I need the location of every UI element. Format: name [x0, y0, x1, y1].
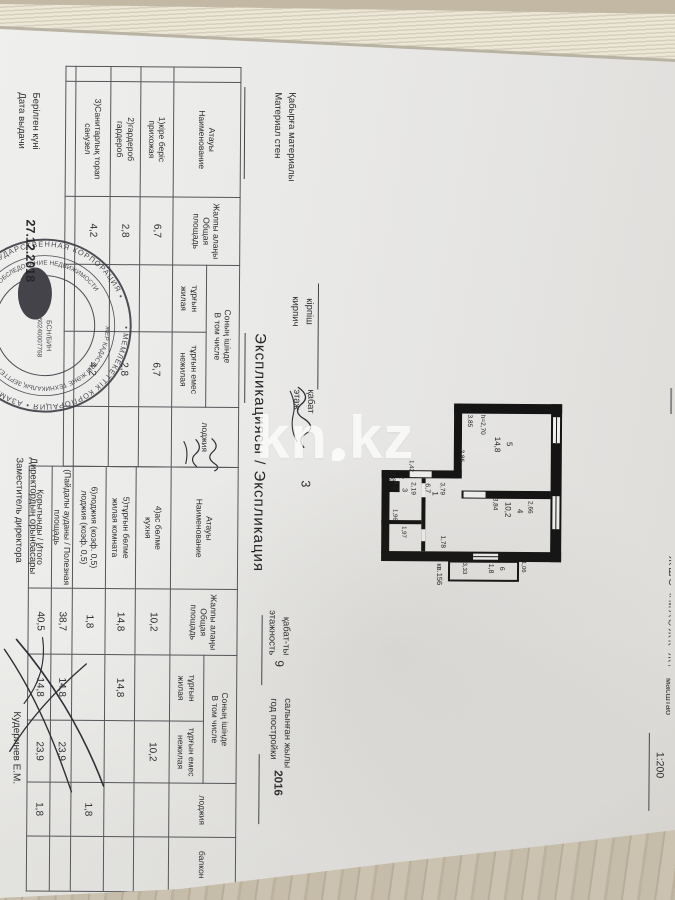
- header-living: тұрғынжилая: [169, 655, 203, 721]
- wall-material-underline: [244, 87, 246, 179]
- svg-text:6,7: 6,7: [424, 483, 431, 493]
- plan-loggia: [449, 561, 518, 580]
- kn-kz-watermark: kn kz: [256, 408, 414, 468]
- floors-underline: [261, 615, 262, 685]
- apartment-number: кв.156: [435, 563, 444, 585]
- room-name: 6)лоджия (коэф. 0,5)лоджия (коэф. 0,5): [72, 466, 106, 588]
- wall-value-rule: [317, 284, 319, 390]
- svg-text:2,66: 2,66: [526, 501, 533, 514]
- plan-wall-right: [381, 551, 561, 562]
- header-including: Соның ішіндеВ том числе: [203, 655, 237, 783]
- cell: [141, 67, 174, 82]
- svg-text:4: 4: [515, 509, 524, 514]
- svg-text:1,96: 1,96: [391, 509, 397, 521]
- issue-date-value: 27.12.2018: [23, 219, 37, 282]
- header-nonliving: тұрғын емеснежилая: [172, 332, 207, 407]
- scale-label-wrap: масштаб: [664, 678, 670, 738]
- cell: [103, 837, 133, 892]
- header-name: АтауыНаименование: [170, 467, 238, 589]
- svg-text:3: 3: [401, 488, 408, 492]
- svg-text:1,97: 1,97: [400, 526, 406, 538]
- header-total-area: Жалпы алаңыОбщая площадь: [173, 197, 240, 265]
- floor-value: 3: [299, 480, 313, 487]
- room-name: 2)гардеробгардероб: [110, 82, 141, 197]
- header-name: АтауыНаименование: [173, 82, 241, 197]
- cell: 10,2: [135, 589, 170, 655]
- plan-wall-bottom: [381, 470, 390, 553]
- svg-text:1,78: 1,78: [439, 535, 446, 548]
- svg-text:1: 1: [431, 491, 440, 496]
- room-name: 4)ас бөлмекухня: [135, 467, 171, 589]
- year-built-underline: [258, 754, 259, 824]
- stamp-bin-label: БСН/БИН: [45, 320, 52, 351]
- cell: [111, 67, 141, 82]
- svg-text:3,85: 3,85: [466, 415, 473, 428]
- cell: [76, 66, 111, 81]
- watermark-dot-icon: [332, 448, 345, 461]
- cut-off-marks: [670, 388, 672, 414]
- header-loggia: лоджия: [169, 783, 236, 837]
- wall-material-label: Қабырға материалы Материал стен: [270, 92, 298, 181]
- cell: [138, 407, 171, 467]
- svg-text:2,19: 2,19: [410, 482, 417, 495]
- stamp-bin-value: 160240007768: [35, 314, 42, 358]
- cell: [26, 836, 49, 891]
- svg-text:14,8: 14,8: [493, 437, 502, 453]
- header-total-area: Жалпы алаңыОбщая площадь: [170, 589, 237, 655]
- svg-text:2: 2: [398, 475, 405, 479]
- deputy-director-label: Директордың орынбасары Заместитель дирек…: [11, 457, 39, 574]
- scale-value: 1:200: [654, 752, 666, 778]
- signer-name: Кудеринев Е.М.: [11, 711, 23, 784]
- room-name: 5)тұрғын бөлмежилая комната: [105, 467, 136, 589]
- cell: [174, 67, 241, 82]
- table-header-row: АтауыНаименование Жалпы алаңыОбщая площа…: [205, 67, 241, 467]
- plan-wall-step: [454, 403, 463, 478]
- svg-text:10,2: 10,2: [503, 502, 512, 518]
- cell: [133, 837, 168, 892]
- round-stamp: • МЕМЛЕКЕТТІК КОРПОРАЦИЯ • АЗАМАТТАРҒА А…: [0, 231, 139, 422]
- scale-underline: [648, 733, 650, 811]
- year-built-value: 2016: [271, 770, 283, 796]
- wall-material-value: кірпіш кирпич: [288, 296, 316, 326]
- table-row: 4)ас бөлмекухня 10,2 10,2: [133, 467, 171, 892]
- cell: [139, 265, 172, 332]
- svg-text:3,33: 3,33: [461, 563, 467, 575]
- svg-text:3,85: 3,85: [458, 449, 465, 462]
- scale-label: масштаб: [664, 678, 670, 738]
- svg-text:3,84: 3,84: [491, 498, 498, 511]
- svg-text:h=2,70: h=2,70: [479, 415, 486, 435]
- svg-text:6: 6: [498, 567, 505, 571]
- floors-total-value: 9: [272, 660, 286, 667]
- svg-text:1,8: 1,8: [487, 564, 494, 574]
- svg-text:5: 5: [505, 442, 514, 447]
- table-header-row: АтауыНаименование Жалпы алаңыОбщая площа…: [202, 467, 238, 892]
- cell: [70, 836, 103, 891]
- cell: [134, 655, 169, 721]
- issue-date-label: Берілген күні Дата выдачи: [14, 92, 42, 149]
- cell: [66, 66, 76, 81]
- cell: 6,7: [139, 332, 173, 407]
- svg-text:4,2: 4,2: [392, 481, 399, 491]
- row-label: (Пайдалы ауданы / Полезная площадь: [51, 466, 73, 588]
- header-living: тұрғынжилая: [172, 265, 206, 332]
- cell: 6,7: [140, 197, 173, 265]
- header-including: Соның ішіндеВ том числе: [206, 265, 240, 407]
- table-row: 1)кіре берісприхожая 6,7 6,7: [138, 67, 174, 467]
- cut-off-header-text: ЖШС «МАӘЖК-ЖМ БД»: [664, 556, 671, 666]
- cell: [49, 836, 70, 891]
- cell: [134, 783, 169, 837]
- room-name: 3)Санитарлық торапсанузел: [75, 81, 111, 196]
- cell: 10,2: [134, 721, 169, 783]
- year-built-label: салынған жылы год постройки: [266, 698, 294, 768]
- svg-text:1,06: 1,06: [520, 561, 526, 573]
- svg-text:2,8: 2,8: [389, 472, 396, 482]
- plan-partition-small: [381, 520, 421, 524]
- plan-wall-left: [454, 403, 562, 414]
- room-name: 1)кіре берісприхожая: [140, 82, 174, 197]
- floors-total-label: қабат-ты этажность: [265, 597, 293, 655]
- title-underline: [244, 333, 245, 403]
- header-nonliving: тұрғын емеснежилая: [169, 721, 203, 783]
- svg-text:3,79: 3,79: [439, 482, 446, 495]
- cell: [65, 81, 76, 196]
- photo-of-document: ЖШС «МАӘЖК-ЖМ БД» масштаб 1:200 Қабырға …: [0, 0, 675, 900]
